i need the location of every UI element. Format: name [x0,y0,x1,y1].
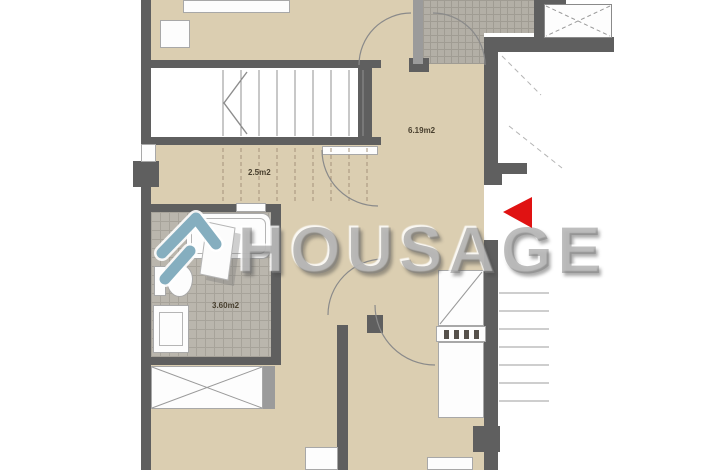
wall-outer-left [141,0,151,470]
void-dashed-lines [502,56,562,168]
wardrobe-top [183,0,290,13]
sink [153,305,189,353]
wall-bathroom-top-left [151,204,236,212]
wall-block-bottom-right [473,426,500,452]
wall-a [151,60,381,68]
area-label-landing: 6.19m2 [408,126,435,135]
furniture-bottom-right [427,457,473,470]
terrace-tiles-side [423,0,484,64]
door-leaf-bathroom [236,203,266,212]
wall-stair-right [358,66,372,145]
elevator-shaft-box [544,4,612,38]
stairwell-floor [151,68,358,137]
wall-stub-right-cap [484,174,502,185]
wall-pillar-left [133,161,159,187]
stair-treads-exterior [499,293,549,401]
cabinet-top-left [160,20,190,48]
wall-bed-stub [263,366,275,409]
wall-shaft-left [534,0,544,38]
watermark-text: HOUSAGE [238,212,607,288]
wall-terrace-partition [413,0,423,64]
area-label-hall: 2.5m2 [248,168,271,177]
wall-b [151,137,381,145]
wall-niche [141,144,156,162]
area-label-bathroom: 3.60m2 [212,301,239,310]
door-leaf-hall [322,146,378,155]
bed-headboard [436,326,486,342]
wall-bathroom-bottom [141,357,281,365]
wall-central-vertical [337,325,348,470]
bed-bottom-left [151,366,263,409]
furniture-bottom-center [305,447,338,470]
wall-stub-right [484,163,527,174]
wall-door-post-junction [367,315,383,333]
bed-bottom-right [438,342,484,418]
toilet-tank [154,266,166,296]
wall-right-upper [484,37,498,178]
floor-plan: 2.5m2 6.19m2 3.60m2 HOUSAGE [0,0,726,470]
wall-top-right-horizontal [484,37,614,52]
